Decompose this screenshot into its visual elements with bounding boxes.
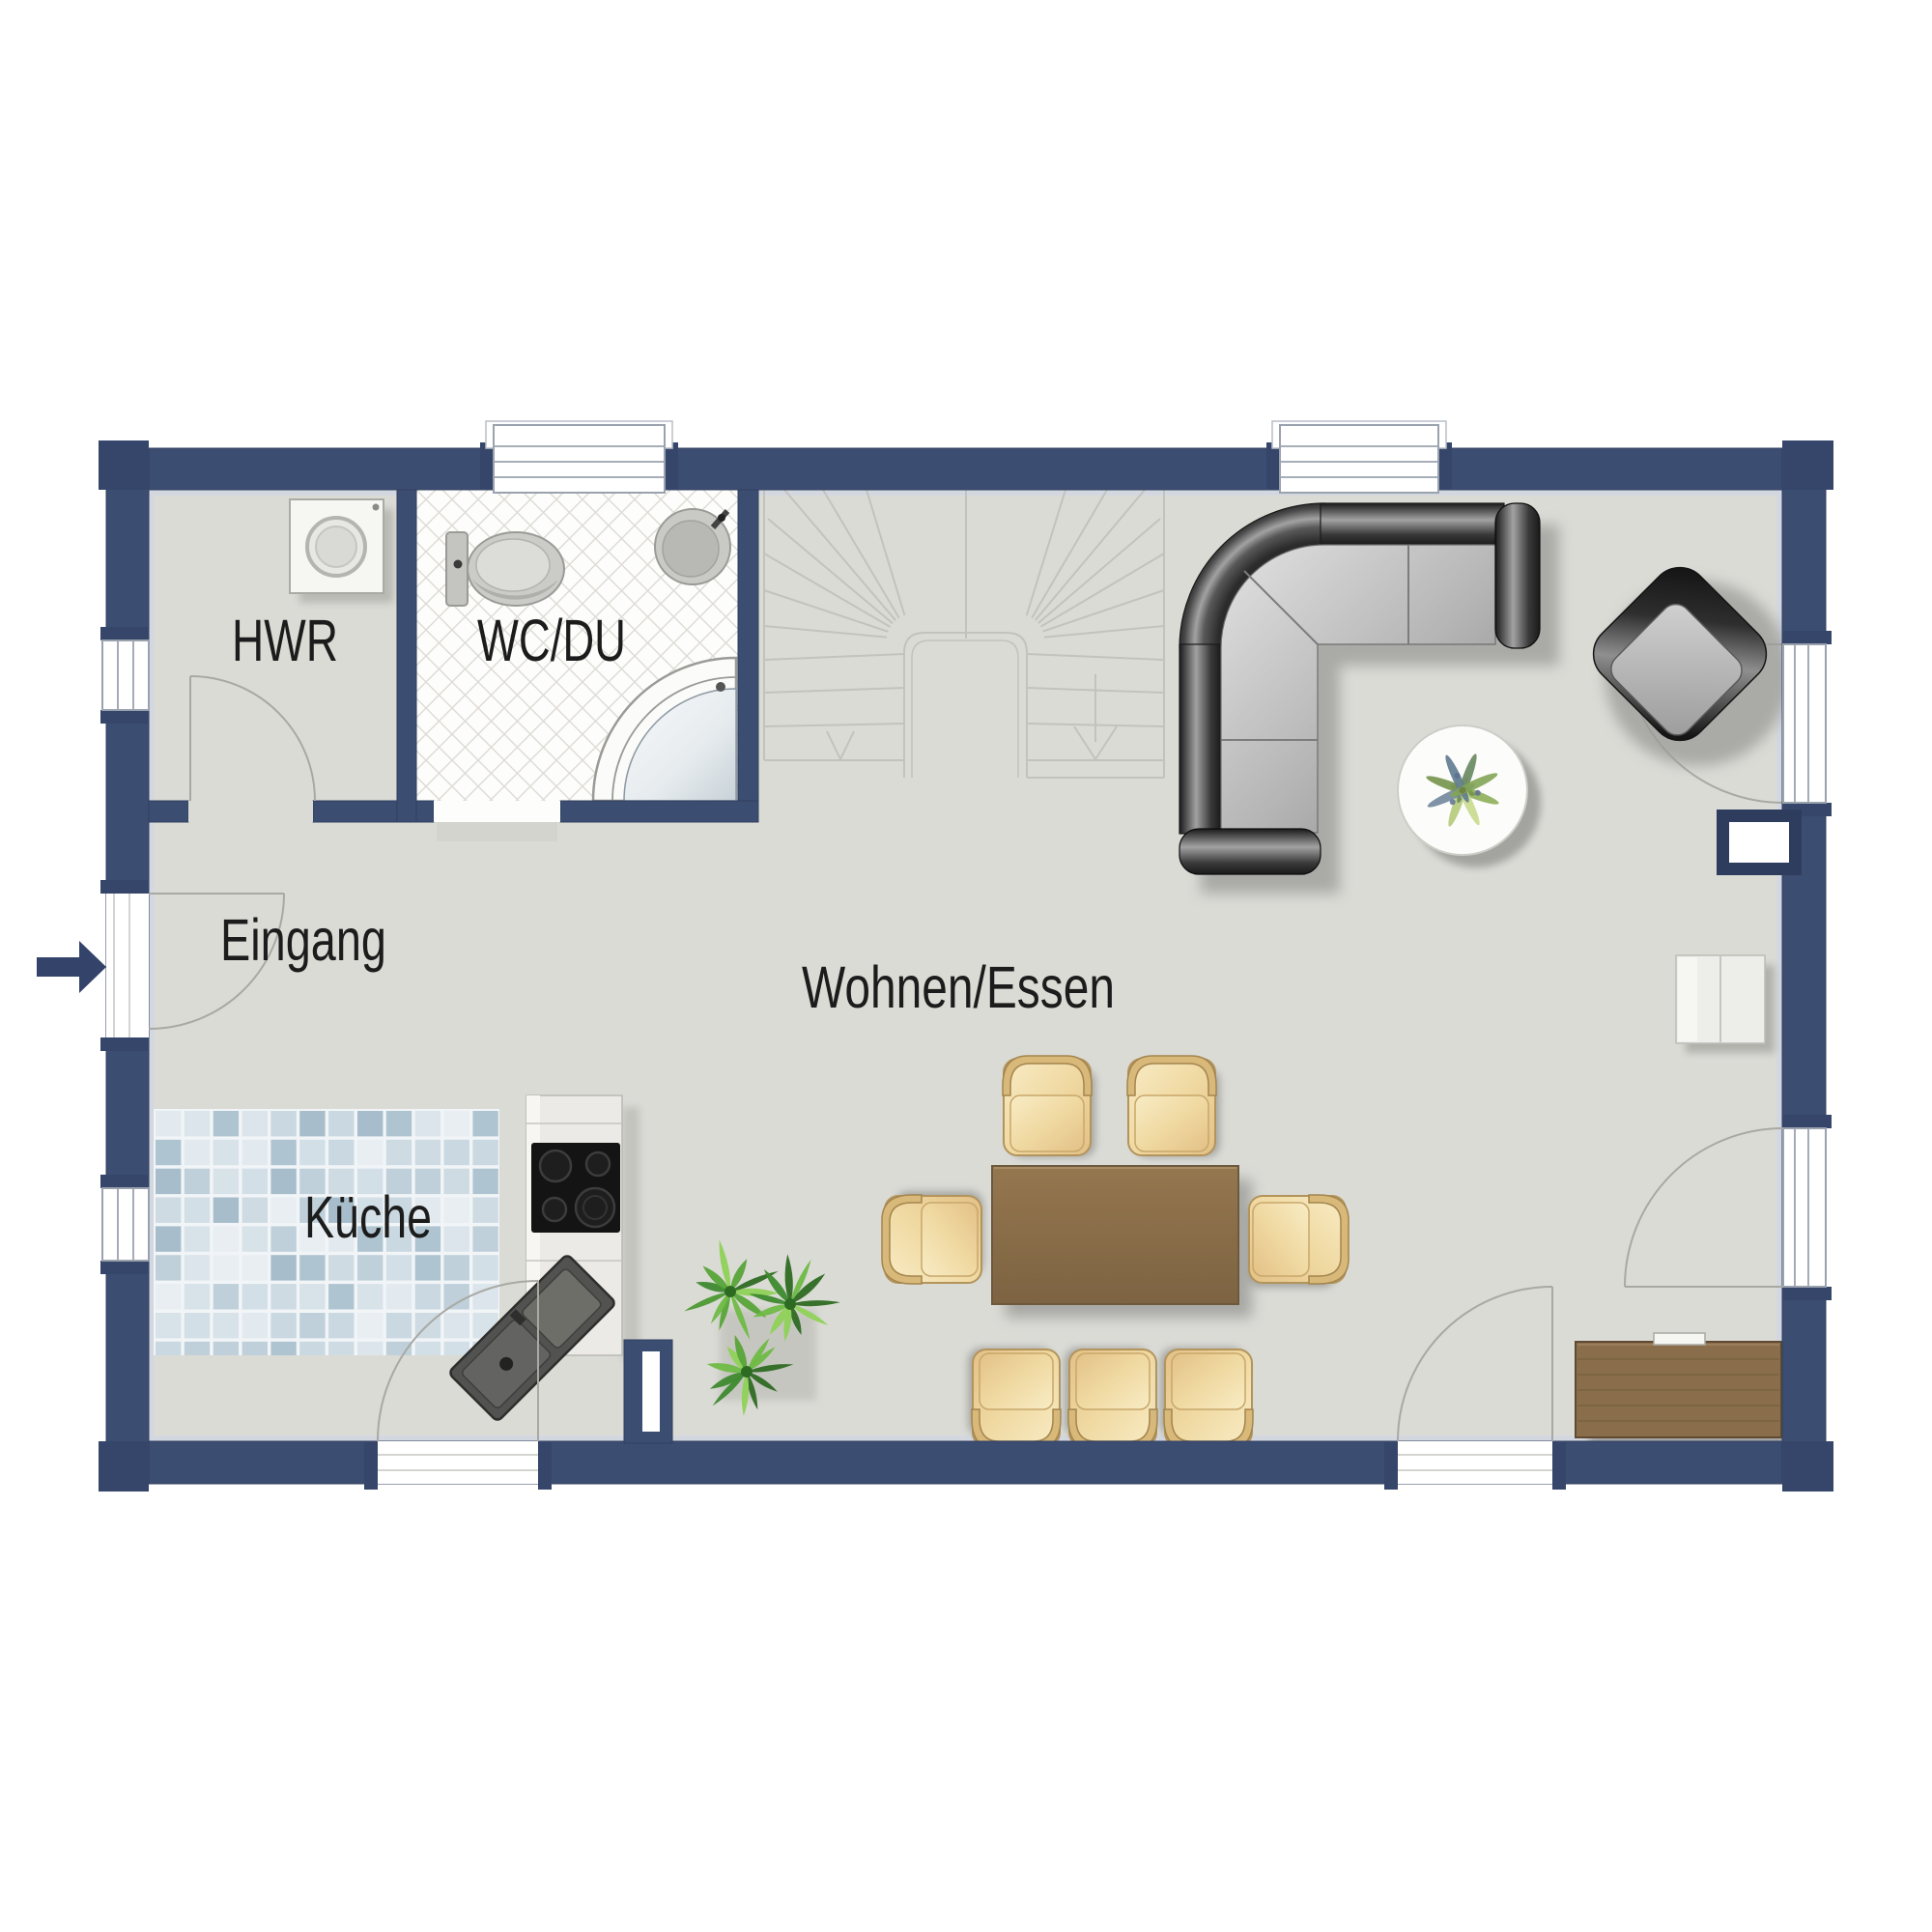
svg-text:WC/DU: WC/DU bbox=[477, 608, 626, 673]
svg-text:Küche: Küche bbox=[304, 1184, 432, 1250]
svg-text:Wohnen/Essen: Wohnen/Essen bbox=[802, 954, 1115, 1020]
svg-text:HWR: HWR bbox=[232, 608, 338, 673]
svg-text:Eingang: Eingang bbox=[220, 907, 386, 973]
